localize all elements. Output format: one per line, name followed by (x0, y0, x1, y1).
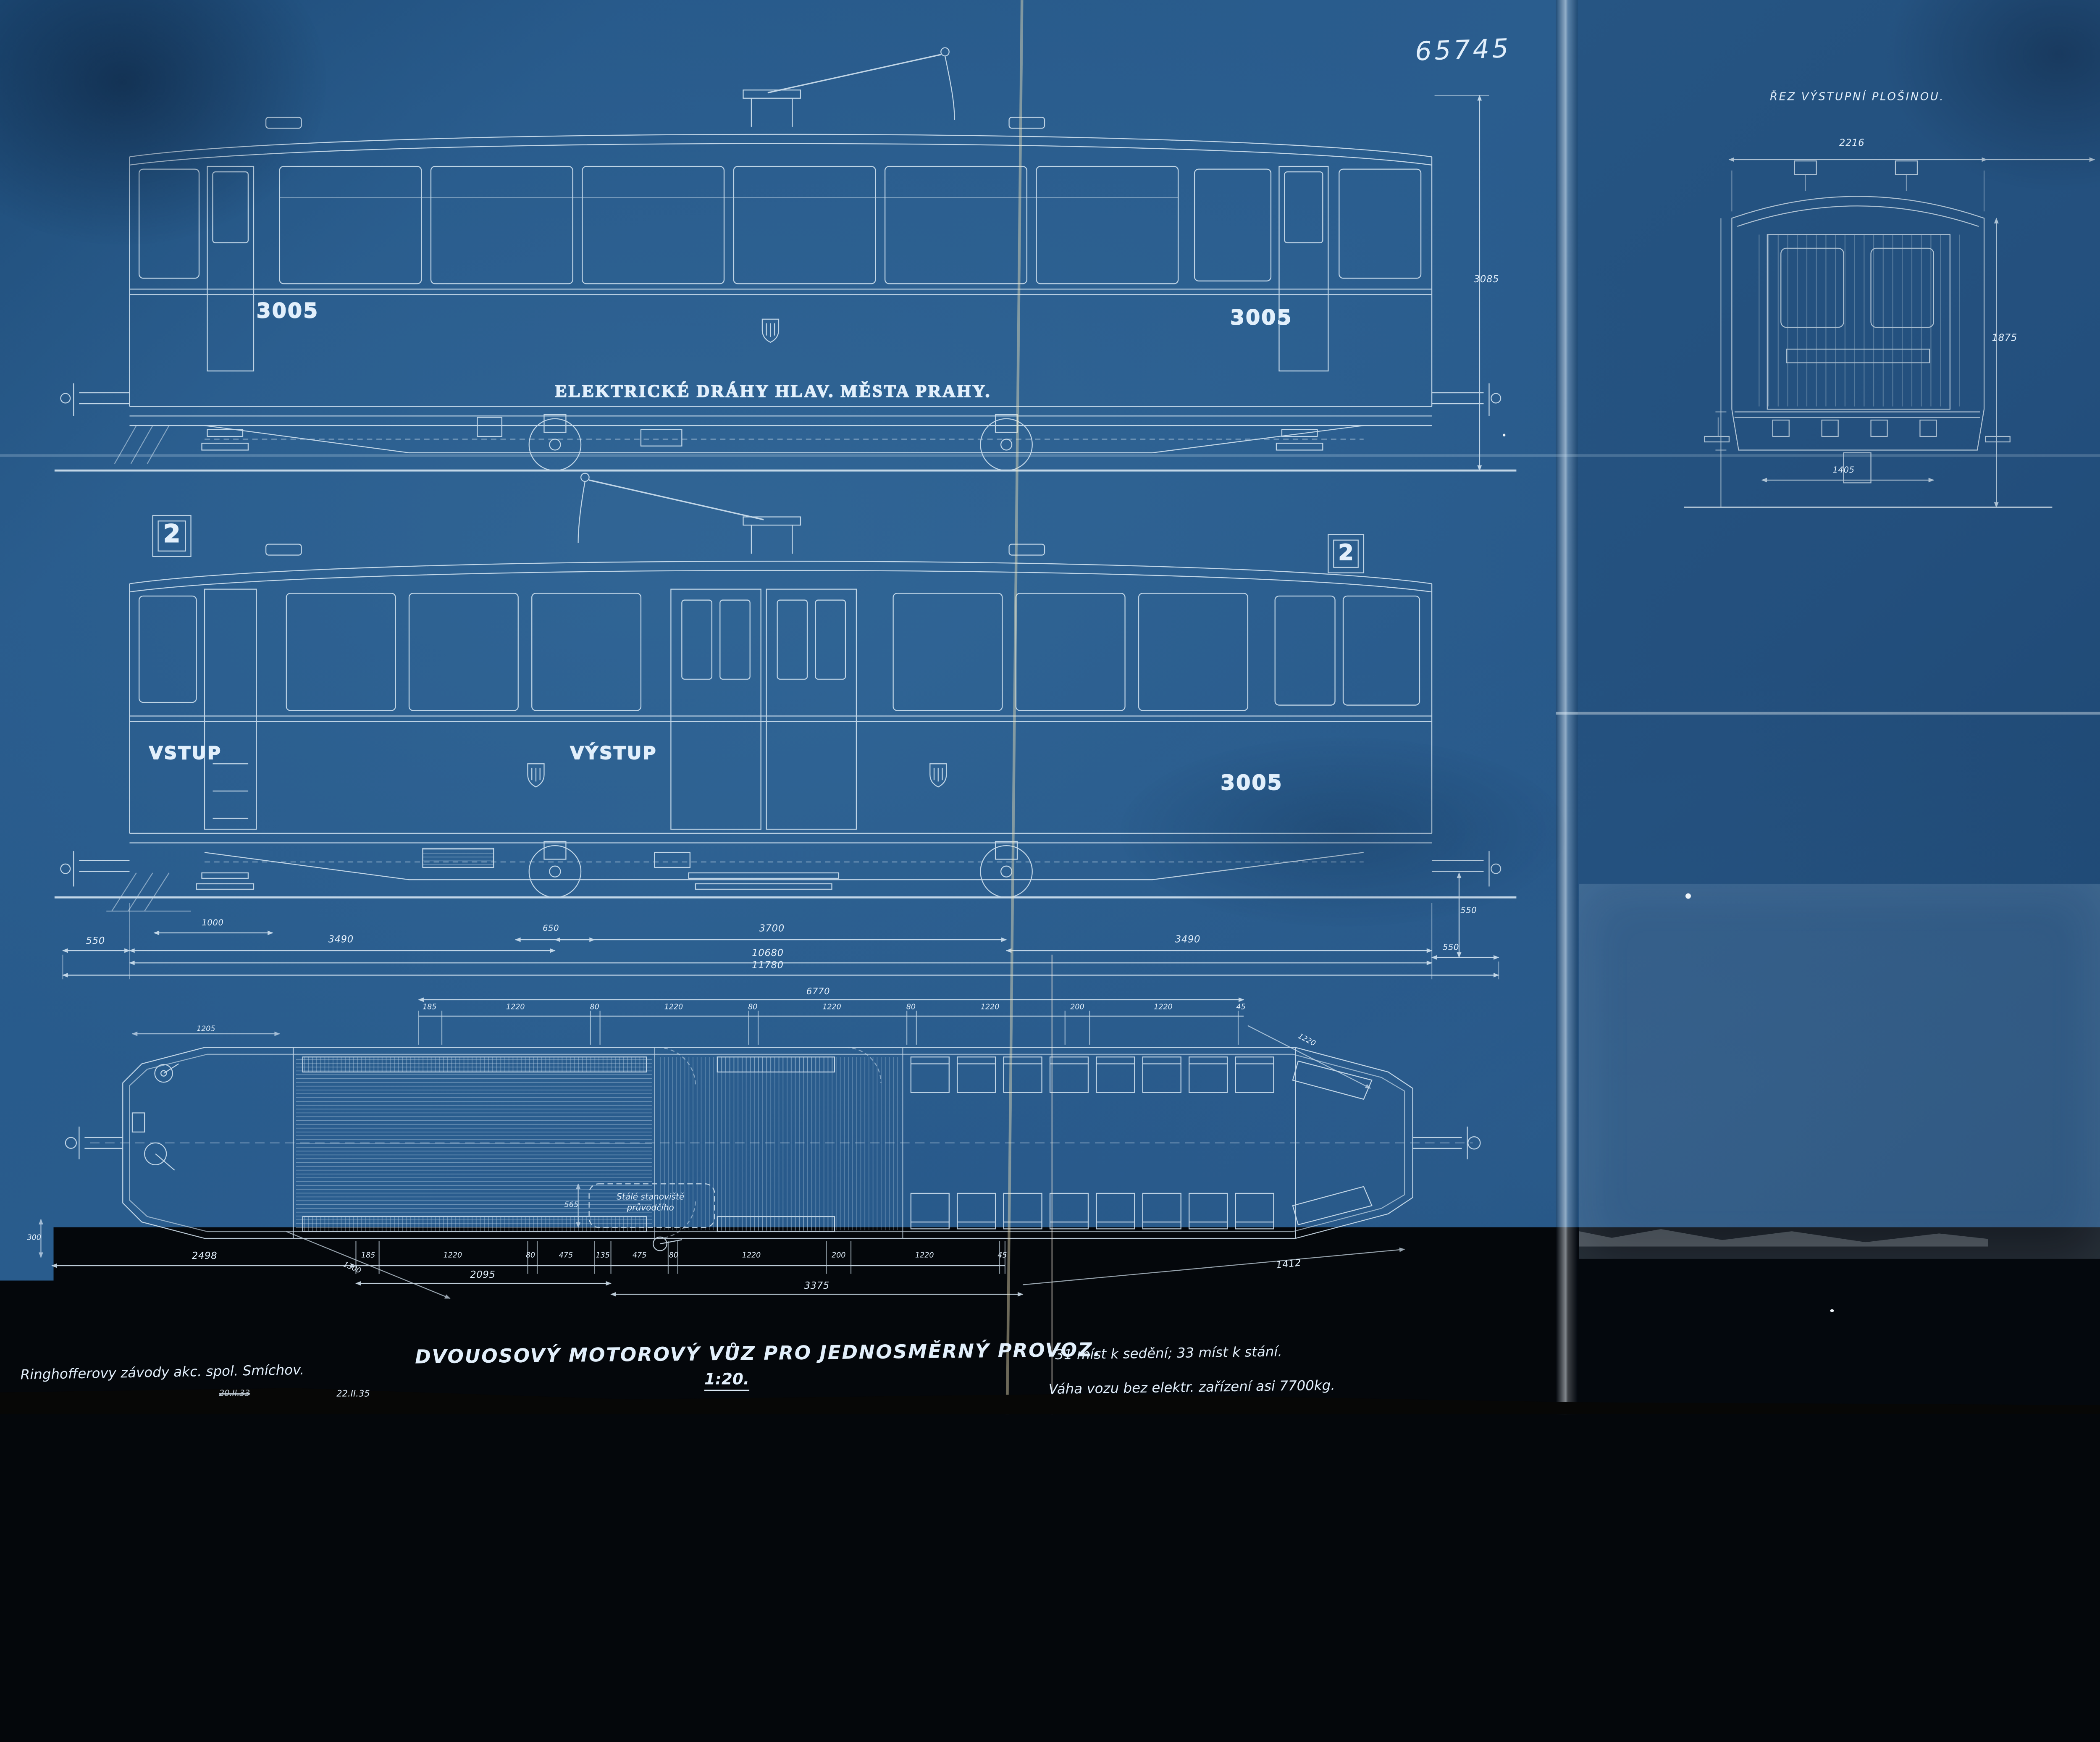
dim-buffer-left: 550 (86, 935, 105, 946)
route-number-plate: 2 (163, 520, 181, 549)
dim-chain: 185 (423, 1004, 436, 1012)
dim-chain: 1220 (1154, 1004, 1173, 1012)
paper-speck (1503, 434, 1505, 436)
cross-section-title: ŘEZ VÝSTUPNÍ PLOŠINOU. (1770, 91, 1945, 103)
archive-number: 65745 (1415, 34, 1512, 67)
paper-speck (1685, 893, 1691, 899)
revision-date: 22.II.35 (336, 1388, 370, 1399)
dim-chain: 475 (633, 1252, 646, 1260)
dim-windows-total: 6770 (806, 986, 830, 997)
dim-chain: 200 (1070, 1004, 1084, 1012)
dim-step: 1000 (202, 919, 223, 928)
conductor-note-line2: průvodčího (627, 1203, 674, 1213)
dim-chain: 45 (997, 1252, 1007, 1260)
dim-buffer-right: 550 (1443, 943, 1459, 953)
drawing-scale: 1:20. (704, 1369, 749, 1391)
dim-overall-length: 11780 (752, 960, 784, 971)
exit-label: VÝSTUP (570, 744, 657, 765)
prague-crest-icon (930, 764, 946, 787)
car-number: 3005 (1230, 305, 1293, 330)
repair-patch (1579, 884, 2100, 1259)
capacity-note: 31 míst k sedění; 33 míst k stání. (1055, 1345, 1282, 1363)
dim-width-bottom: 1405 (1833, 466, 1855, 476)
route-number-plate: 2 (1338, 539, 1353, 565)
blueprint-sheet: 65745 3005 3005 ELEKTRICKÉ DRÁHY HLAV. M… (0, 0, 2100, 1414)
dim-chain: 135 (596, 1252, 609, 1260)
car-number: 3005 (1221, 770, 1283, 795)
dim-overhang-right: 3490 (1175, 934, 1200, 945)
dim-chain: 80 (669, 1252, 678, 1260)
dim-chain: 80 (906, 1004, 916, 1012)
operator-lettering: ELEKTRICKÉ DRÁHY HLAV. MĚSTA PRAHY. (555, 381, 992, 402)
dim-body-length: 10680 (752, 948, 784, 959)
dim-chain: 200 (832, 1252, 845, 1260)
dim-buffer-plan: 300 (27, 1234, 41, 1242)
dim-width-top: 2216 (1839, 138, 1864, 149)
dim-chain: 80 (748, 1004, 757, 1012)
prague-crest-icon (528, 764, 544, 787)
prague-crest-icon (762, 319, 779, 342)
side-elevation-drawing (55, 48, 1517, 470)
paper-speck (1830, 1309, 1834, 1312)
dim-height: 3085 (1474, 274, 1499, 285)
dim-chain: 80 (526, 1252, 535, 1260)
dim-chain: 1220 (822, 1004, 841, 1012)
dim-chain: 1220 (915, 1252, 934, 1260)
vertical-fold-crease (1556, 0, 1578, 1414)
platform-elevation-drawing (55, 473, 1517, 980)
car-number: 3005 (257, 299, 319, 323)
dim-subtotal-left: 2095 (470, 1270, 495, 1281)
horizontal-fold-right (1556, 712, 2100, 715)
conductor-note-line1: Stálé stanoviště (617, 1193, 684, 1202)
dim-wheel: 650 (543, 924, 559, 934)
horizontal-crease (0, 454, 2100, 456)
dim-subtotal-right: 3375 (804, 1281, 829, 1292)
dim-buffer-height: 550 (1460, 906, 1477, 916)
dim-platform: 1205 (197, 1026, 215, 1034)
dim-conductor: 565 (564, 1201, 578, 1209)
dim-chain: 475 (559, 1252, 573, 1260)
dim-chain: 1220 (506, 1004, 525, 1012)
dim-overhang-left: 3490 (328, 934, 353, 945)
dim-chain: 45 (1236, 1004, 1245, 1012)
dim-chain: 1220 (444, 1252, 462, 1260)
dim-chain: 1220 (981, 1004, 1000, 1012)
dim-chain: 185 (361, 1252, 375, 1260)
dim-axle-base: 3700 (759, 923, 784, 934)
dim-chain: 1220 (742, 1252, 761, 1260)
dim-chain: 1220 (664, 1004, 683, 1012)
date-struck: 20.II.33 (219, 1389, 250, 1399)
entrance-label: VSTUP (149, 744, 222, 765)
dim-left-total: 2498 (192, 1251, 217, 1261)
dim-height-right: 1875 (1992, 333, 2017, 344)
dim-chain: 80 (590, 1004, 599, 1012)
